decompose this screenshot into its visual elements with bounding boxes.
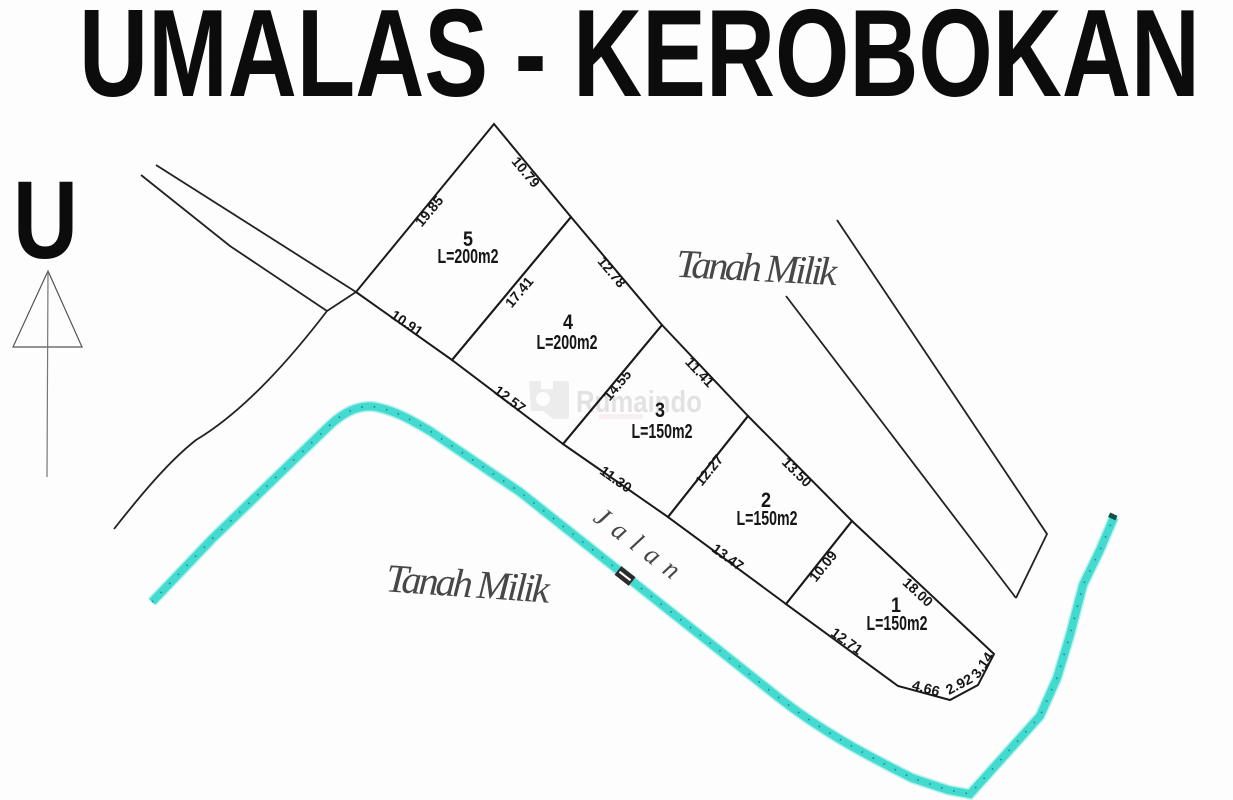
svg-text:L=200m2: L=200m2 [438,246,499,268]
svg-text:L=150m2: L=150m2 [632,421,693,443]
svg-text:L=150m2: L=150m2 [737,508,798,530]
svg-text:UMALAS - KEROBOKAN: UMALAS - KEROBOKAN [79,0,1200,123]
svg-text:Tanah Milik: Tanah Milik [675,241,839,294]
svg-text:Rumaindo: Rumaindo [576,384,702,419]
svg-text:L=200m2: L=200m2 [537,332,598,354]
svg-text:U: U [13,159,78,282]
svg-text:L=150m2: L=150m2 [867,613,928,635]
svg-text:4: 4 [563,311,573,334]
svg-text:3: 3 [655,399,665,422]
